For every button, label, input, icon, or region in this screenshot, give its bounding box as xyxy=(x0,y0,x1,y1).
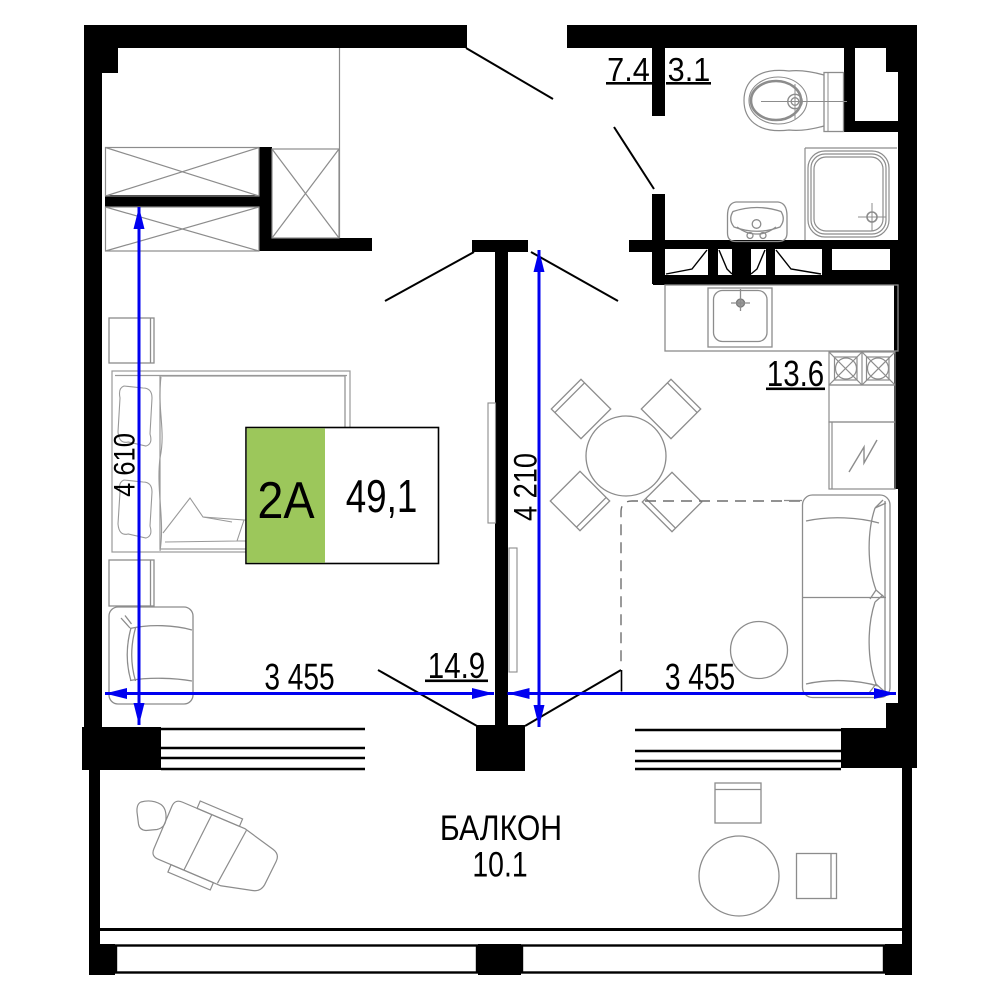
svg-text:3 455: 3 455 xyxy=(264,656,334,698)
svg-text:БАЛКОН: БАЛКОН xyxy=(440,808,562,848)
svg-text:4 210: 4 210 xyxy=(508,453,544,521)
svg-text:3 455: 3 455 xyxy=(665,656,735,698)
svg-text:2А: 2А xyxy=(257,472,314,530)
svg-text:4 610: 4 610 xyxy=(108,433,141,497)
svg-text:49,1: 49,1 xyxy=(346,470,418,522)
svg-text:10.1: 10.1 xyxy=(472,844,527,884)
